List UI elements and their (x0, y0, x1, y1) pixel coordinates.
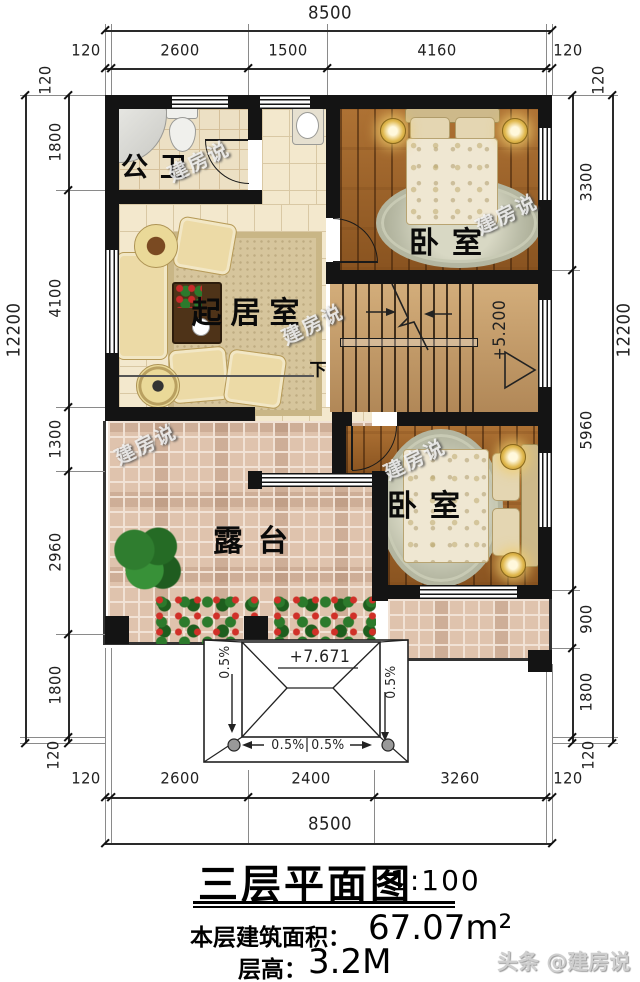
bedside-lamp-top-left (380, 118, 406, 144)
dim-left-seg-0: 120 (36, 65, 55, 94)
porch-slope-bottom-left: 0.5% (271, 737, 304, 753)
dim-right-seg-1: 3300 (577, 162, 596, 201)
extension-line (327, 24, 328, 95)
extension-line (56, 190, 105, 191)
extension-line (56, 634, 105, 635)
extension-line (552, 664, 553, 843)
wall-bedroom-top-left (326, 95, 340, 218)
side-table-top (134, 224, 178, 268)
window-passage-terrace (262, 473, 372, 487)
extension-line (56, 471, 105, 472)
wall-bedroom-bottom-bottom-left (372, 585, 420, 599)
extension-line (56, 407, 105, 408)
dim-right-seg-0: 120 (589, 65, 608, 94)
dim-left-seg-5: 1800 (46, 665, 65, 704)
bed-bottom-pillow-bottom (492, 508, 520, 556)
dim-left-seg-1: 1800 (46, 122, 65, 161)
dim-line-top-segments (105, 68, 552, 70)
stair-elevation: +5.200 (490, 300, 510, 361)
porch-elevation: +7.671 (290, 647, 351, 667)
dim-left-seg-3: 1300 (46, 419, 65, 458)
dim-left-seg-2: 4100 (46, 278, 65, 317)
dim-right-seg-4: 1800 (577, 672, 596, 711)
extension-line (20, 95, 105, 96)
dim-left-total: 12200 (4, 303, 25, 358)
drawing-scale: 1:100 (390, 864, 481, 897)
title-underline (193, 901, 455, 908)
dim-top-seg-3: 4160 (417, 41, 456, 60)
extension-line (552, 270, 580, 271)
dim-right-seg-2: 5960 (577, 410, 596, 449)
armchair-top (172, 215, 238, 276)
dim-line-left-segments (68, 95, 70, 743)
dim-top-seg-1: 2600 (160, 41, 199, 60)
extension-line (20, 743, 105, 744)
door-leaf-bedroom-top (333, 261, 377, 263)
wall-left-upper (105, 95, 119, 250)
dim-bottom-seg-1: 2600 (160, 769, 199, 788)
dim-top-seg-0: 120 (71, 41, 100, 60)
window-hall-top (260, 95, 310, 109)
wall-right-1 (538, 95, 552, 128)
door-leaf-bedroom-bottom (351, 426, 353, 470)
extension-line (105, 648, 106, 843)
wall-living-bottom (105, 407, 255, 421)
side-terrace-post-right (528, 650, 552, 672)
extension-line (546, 664, 547, 843)
wall-bedroom-bottom-bottom-right (517, 585, 552, 599)
dim-bottom-seg-3: 3260 (440, 769, 479, 788)
dim-line-left-total (25, 95, 27, 743)
floor-plan-canvas: +5.200 下 +7.671 0.5% 0.5% 0.5% 0.5% 公卫 起… (0, 0, 640, 982)
terrace-plant (114, 526, 182, 594)
extension-line (111, 648, 112, 843)
extension-line (248, 24, 249, 95)
extension-line (552, 24, 553, 95)
extension-line (111, 24, 112, 95)
armchair-bottom-right (223, 348, 288, 410)
dim-bottom-seg-4: 120 (553, 769, 582, 788)
bedside-lamp-bottom-bottom (500, 552, 526, 578)
dim-right-seg-3: 900 (577, 604, 596, 633)
extension-line (552, 648, 580, 649)
dim-bottom-total: 8500 (308, 814, 352, 835)
side-table-bottom (136, 364, 180, 408)
wall-bathroom-bottom (105, 190, 262, 204)
extension-line (552, 95, 618, 96)
stair-direction-line (118, 375, 314, 377)
dim-line-bottom-total (105, 843, 552, 845)
sofa-left (116, 252, 168, 360)
dim-line-right-total (612, 95, 614, 743)
room-label-terrace: 露台 (213, 516, 303, 560)
dim-right-total: 12200 (614, 303, 635, 358)
window-bedroom-top-right (538, 128, 552, 200)
dim-top-seg-4: 120 (553, 41, 582, 60)
extension-line (552, 737, 618, 738)
dim-line-top-total (105, 30, 552, 32)
bedside-lamp-top-right (502, 118, 528, 144)
room-label-bedroom-bottom: 卧室 (387, 481, 473, 525)
porch-slope-left: 0.5% (217, 645, 233, 678)
washbasin-sink (296, 112, 319, 139)
wall-bedroom-top-bottom (326, 270, 552, 284)
dim-line-bottom-segments (105, 797, 552, 799)
floor-height-label: 层高： (238, 950, 307, 982)
watermark-footer: 头条 @建房说 (497, 946, 630, 976)
dim-top-total: 8500 (308, 3, 352, 24)
porch-slope-bottom-right: 0.5% (311, 737, 344, 753)
dim-bottom-seg-2: 2400 (291, 769, 330, 788)
window-living-left (105, 250, 119, 353)
dim-left-seg-6: 120 (44, 740, 63, 769)
extension-line (20, 737, 105, 738)
wall-passage-stub-left (248, 471, 262, 489)
dim-top-seg-2: 1500 (268, 41, 307, 60)
dim-right-seg-5: 120 (579, 740, 598, 769)
terrace-post-left (105, 616, 129, 644)
dim-bottom-seg-0: 120 (71, 769, 100, 788)
extension-line (248, 770, 249, 843)
wall-bedroom-bottom-left-upper (332, 426, 346, 474)
window-bedroom-bottom-right (538, 453, 552, 527)
extension-line (374, 770, 375, 843)
stair-down-label: 下 (310, 356, 327, 381)
extension-line (552, 590, 580, 591)
floor-height-value: 3.2M (308, 942, 391, 982)
window-bedroom-bottom-bottom (420, 585, 517, 599)
extension-line (546, 24, 547, 95)
porch-slope-right: 0.5% (383, 665, 399, 698)
dim-left-seg-4: 2960 (46, 532, 65, 571)
terrace-parapet-left (103, 421, 106, 645)
extension-line (105, 24, 106, 95)
window-bathroom-top (172, 95, 228, 109)
bedside-lamp-bottom-top (500, 444, 526, 470)
stair-annotations (340, 284, 545, 419)
